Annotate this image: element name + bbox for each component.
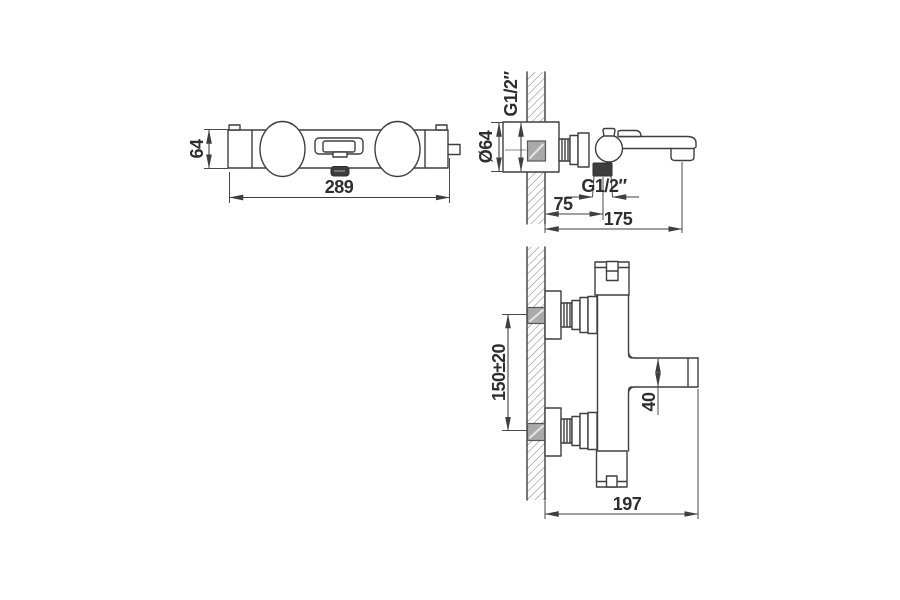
dim-height-64: 64 — [187, 130, 228, 169]
top-inlet-connection — [528, 308, 546, 324]
left-knob — [260, 122, 305, 177]
dim-label-175: 175 — [604, 209, 633, 229]
front-view: 64 289 — [187, 122, 460, 204]
left-top-tab — [229, 125, 240, 130]
dim-label-150-20: 150±20 — [489, 344, 509, 401]
dim-label-d64: Ø64 — [476, 130, 496, 163]
knob-cap — [603, 129, 615, 137]
shower-outlet-port — [593, 163, 612, 176]
top-connector — [545, 291, 597, 339]
temperature-handle — [595, 262, 629, 296]
dim-inlet-spacing: 150±20 — [489, 315, 527, 431]
right-top-tab — [436, 125, 447, 130]
side-view: Ø64 G1/2″ — [476, 71, 696, 233]
dim-label-g12-bottom: G1/2″ — [581, 176, 627, 196]
dim-label-40: 40 — [639, 392, 659, 412]
center-bracket — [315, 138, 363, 157]
right-outlet-stub — [448, 145, 460, 155]
threaded-connector — [559, 133, 589, 167]
dim-label-75: 75 — [553, 194, 573, 214]
wall-section-plan — [527, 247, 545, 500]
spout-arm — [635, 358, 698, 387]
technical-drawing-page: 64 289 Ø64 — [0, 0, 900, 600]
dim-label-64: 64 — [187, 139, 207, 159]
dim-label-g12-top: G1/2″ — [501, 71, 521, 117]
flow-handle — [597, 451, 628, 487]
body-column — [598, 295, 636, 451]
diverter-bump — [618, 131, 641, 137]
dim-label-289: 289 — [325, 177, 354, 197]
dim-flange-diameter: Ø64 — [476, 123, 503, 172]
bottom-inlet-connection — [528, 424, 546, 441]
faucet-dimension-drawing: 64 289 Ø64 — [0, 0, 900, 600]
bottom-connector — [545, 408, 597, 456]
plan-view: 150±20 40 197 — [489, 247, 698, 519]
dim-label-197: 197 — [613, 494, 642, 514]
side-knob — [596, 135, 623, 162]
right-knob — [375, 122, 420, 177]
wall-pipe-connection — [528, 141, 546, 161]
